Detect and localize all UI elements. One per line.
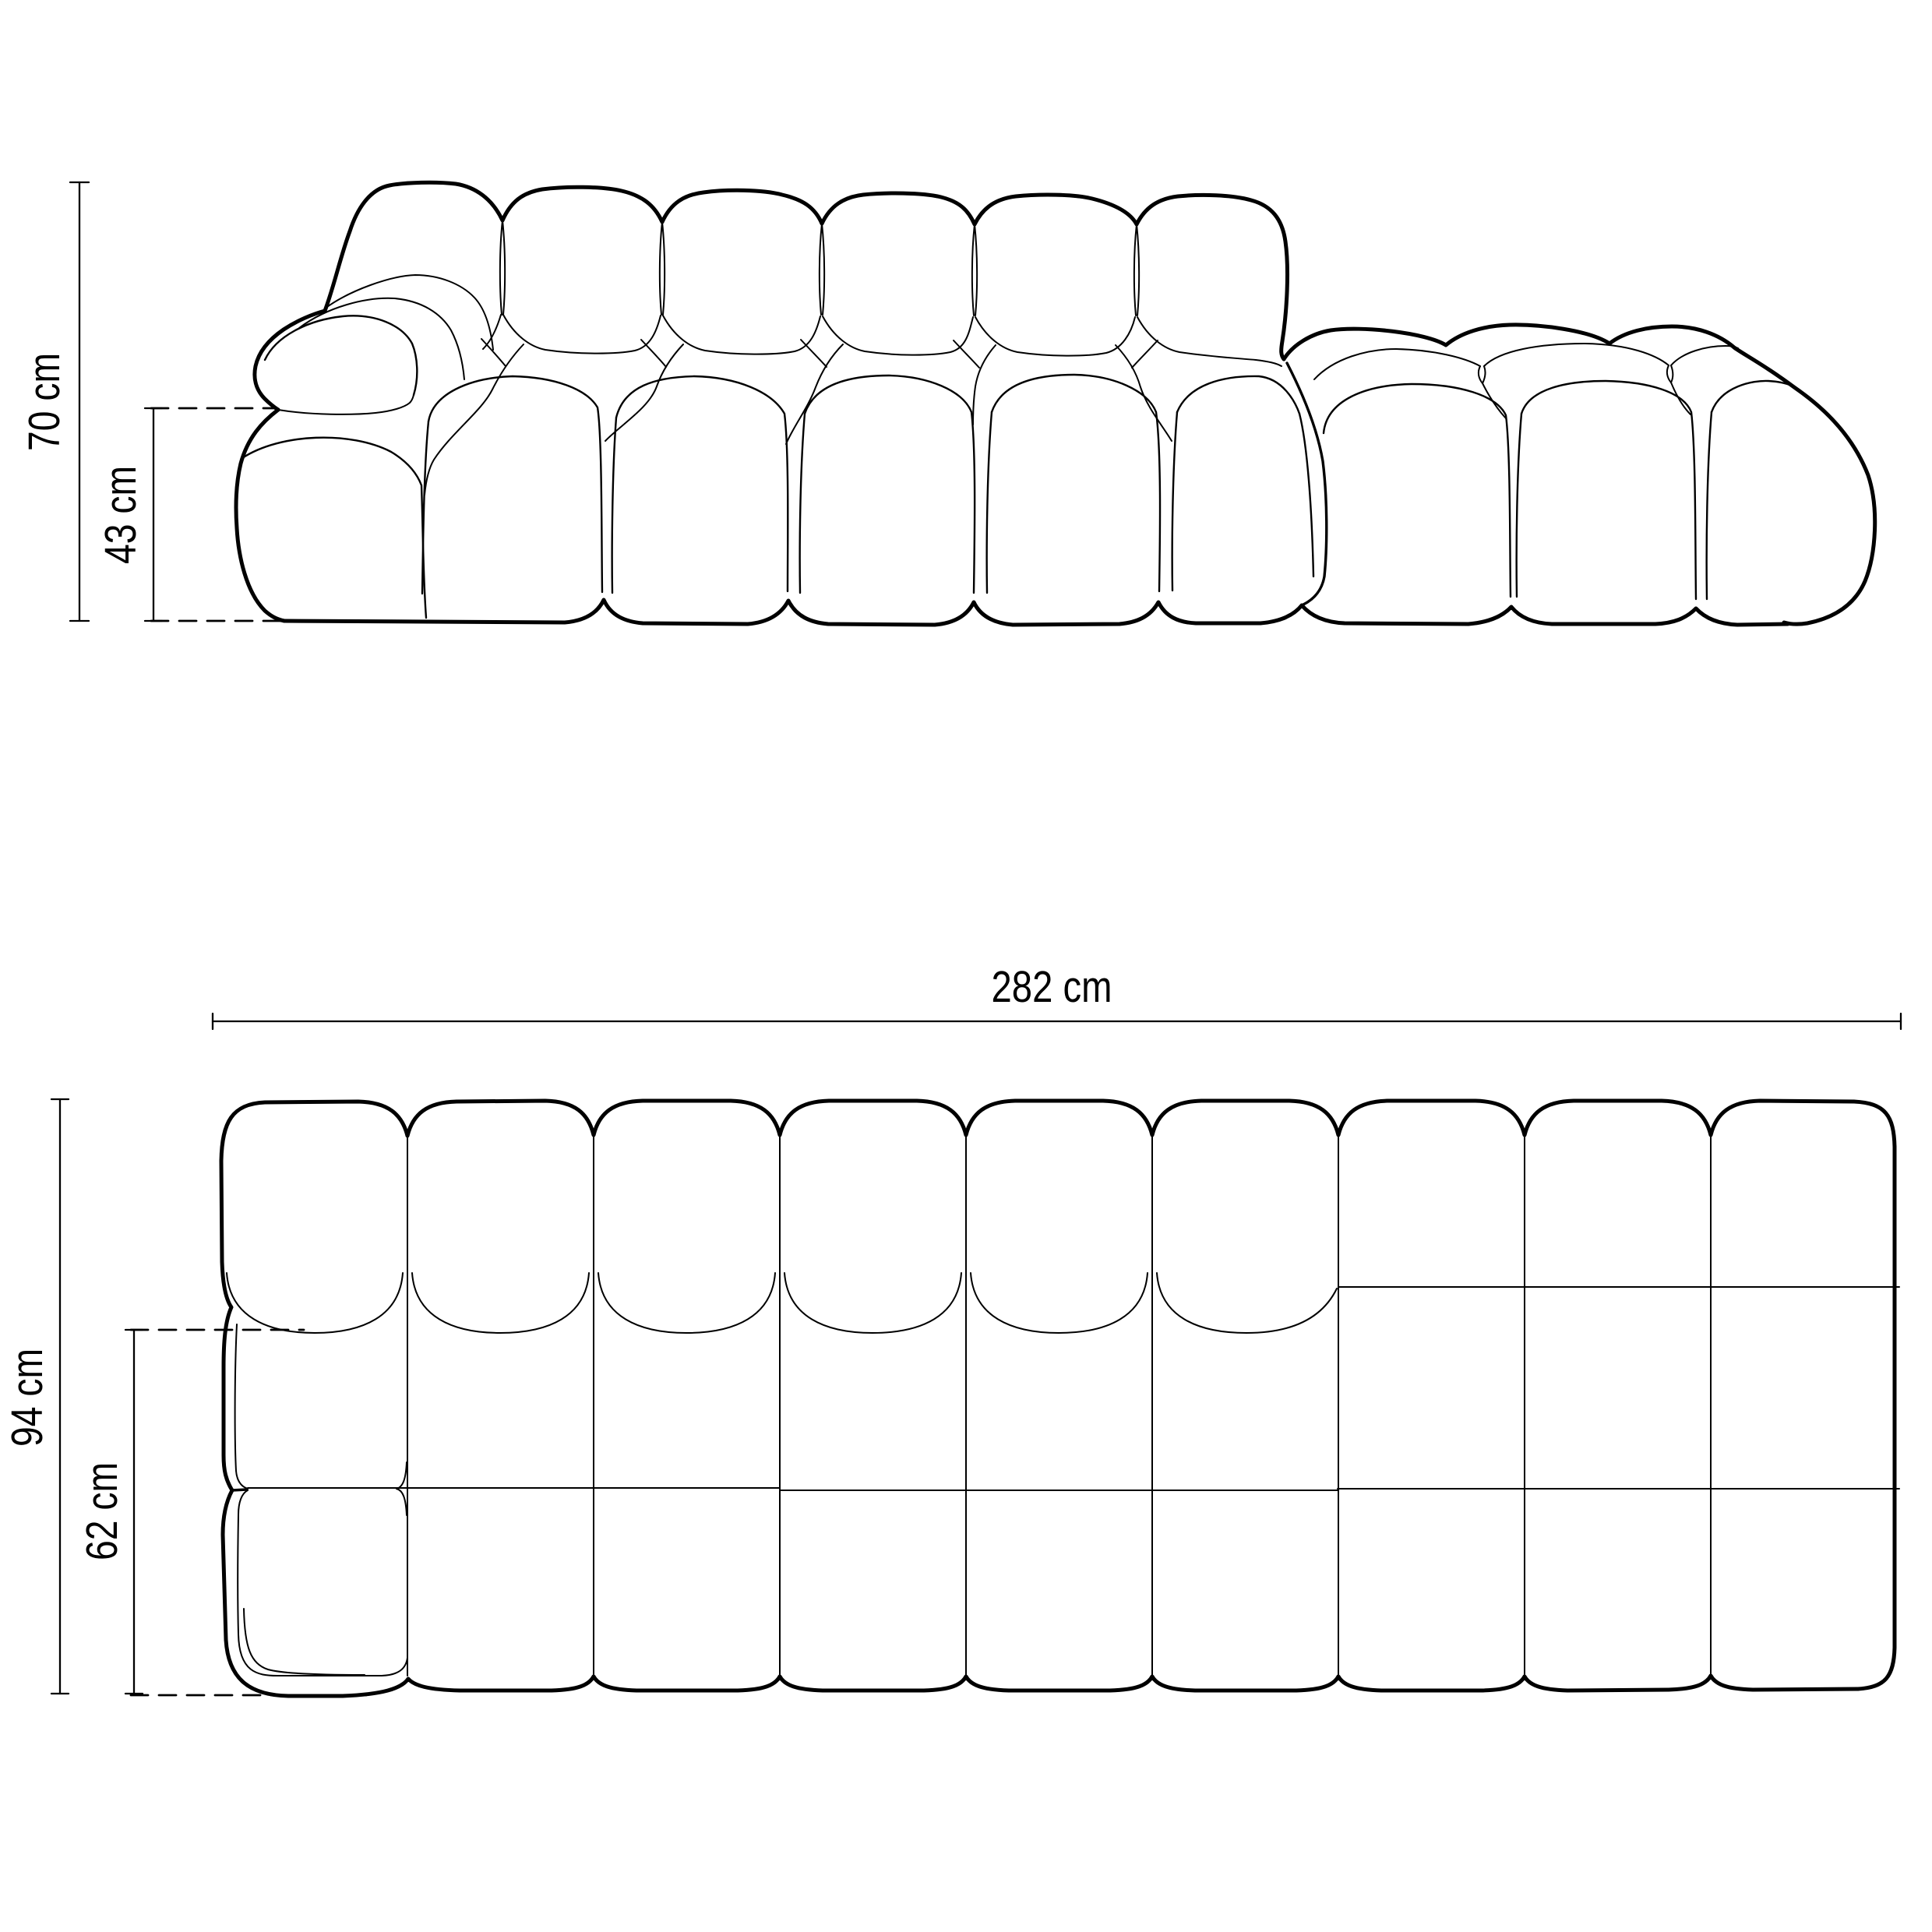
svg-text:282 cm: 282 cm [992,962,1112,1012]
svg-text:43 cm: 43 cm [96,466,146,564]
svg-text:62 cm: 62 cm [77,1462,127,1560]
svg-text:94 cm: 94 cm [2,1349,52,1447]
svg-text:70 cm: 70 cm [19,353,69,451]
